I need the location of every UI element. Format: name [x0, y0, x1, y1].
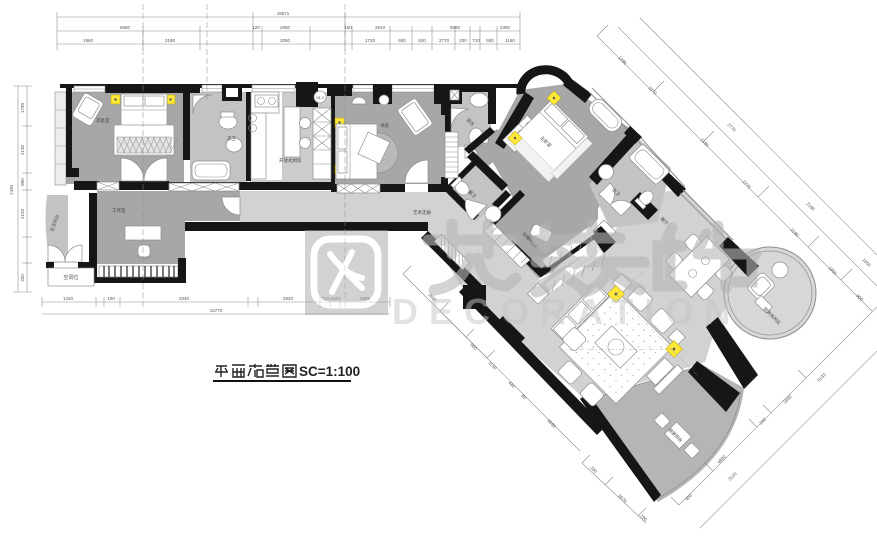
svg-text:710: 710 — [472, 38, 480, 43]
svg-text:1420: 1420 — [63, 296, 74, 301]
svg-text:1160: 1160 — [505, 38, 515, 43]
svg-text:1790: 1790 — [20, 102, 25, 113]
svg-text:200: 200 — [459, 38, 467, 43]
svg-text:艺术走廊: 艺术走廊 — [413, 209, 431, 216]
svg-text:150: 150 — [344, 25, 352, 30]
svg-text:3340: 3340 — [179, 296, 190, 301]
svg-text:2350: 2350 — [500, 25, 511, 30]
svg-text:DECORATION: DECORATION — [392, 291, 741, 332]
svg-text:书房: 书房 — [380, 122, 389, 129]
svg-text:工作室: 工作室 — [112, 207, 126, 214]
svg-text:5660: 5660 — [450, 25, 461, 30]
svg-text:空调位: 空调位 — [63, 274, 78, 281]
svg-text:120: 120 — [252, 25, 260, 30]
svg-text:1960: 1960 — [83, 38, 94, 43]
svg-text:100: 100 — [107, 296, 115, 301]
svg-text:15770: 15770 — [210, 308, 223, 313]
svg-text:2920: 2920 — [283, 296, 294, 301]
svg-text:2130: 2130 — [20, 144, 25, 155]
svg-text:18571: 18571 — [277, 11, 290, 16]
svg-text:2050: 2050 — [280, 25, 291, 30]
svg-text:2610: 2610 — [375, 25, 386, 30]
svg-text:520: 520 — [418, 38, 426, 43]
svg-text:3190: 3190 — [165, 38, 176, 43]
svg-text:1720: 1720 — [365, 38, 376, 43]
svg-text:600: 600 — [398, 38, 406, 43]
svg-text:5650: 5650 — [120, 25, 131, 30]
svg-text:SC=1:100: SC=1:100 — [299, 364, 360, 379]
svg-text:开放式厨房: 开放式厨房 — [279, 157, 302, 164]
svg-text:2120: 2120 — [20, 208, 25, 219]
svg-text:次卫: 次卫 — [227, 135, 236, 142]
svg-text:2050: 2050 — [280, 38, 291, 43]
svg-text:2770: 2770 — [439, 38, 450, 43]
svg-text:N1-2: N1-2 — [316, 96, 324, 100]
svg-text:800: 800 — [20, 178, 25, 186]
svg-text:次卧室: 次卧室 — [96, 117, 110, 124]
svg-text:320: 320 — [20, 274, 25, 282]
svg-text:7430: 7430 — [9, 184, 14, 195]
svg-text:500: 500 — [486, 38, 494, 43]
